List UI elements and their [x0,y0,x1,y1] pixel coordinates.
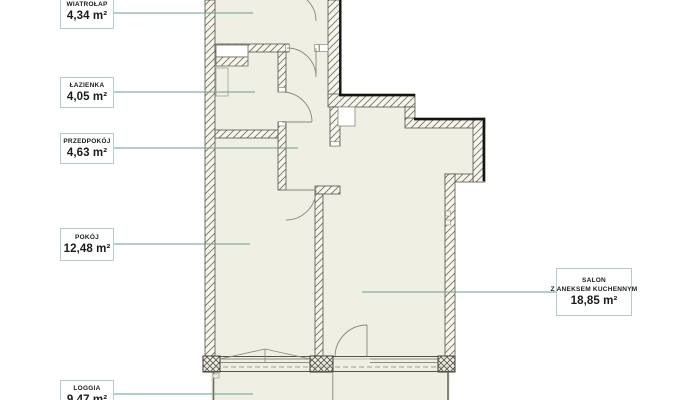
room-name: PRZEDPOKÓJ [63,138,110,145]
room-name: SALON [582,277,606,284]
room-name: LOGGIA [73,385,100,392]
room-label-pokoj: POKÓJ 12,48 m² [60,228,114,261]
room-area: 4,63 m² [67,147,107,159]
room-label-przedpokoj: PRZEDPOKÓJ 4,63 m² [60,133,114,164]
floor-plan-drawing [0,0,692,400]
room-area: 12,48 m² [64,243,111,255]
room-area: 18,85 m² [571,295,618,307]
room-name: WIATROŁAP [66,1,107,8]
room-area: 4,34 m² [67,10,107,22]
room-area: 9,47 m² [67,394,107,400]
room-name-line2: Z ANEKSEM KUCHENNYM [551,286,638,293]
room-area: 4,05 m² [67,91,107,103]
room-label-lazienka: ŁAZIENKA 4,05 m² [60,77,114,108]
floor-plan-page: WIATROŁAP 4,34 m² ŁAZIENKA 4,05 m² PRZED… [0,0,692,400]
room-label-salon: SALON Z ANEKSEM KUCHENNYM 18,85 m² [556,268,632,316]
room-name: ŁAZIENKA [70,82,105,89]
room-label-loggia: LOGGIA 9,47 m² [60,380,114,400]
room-name: POKÓJ [75,234,99,241]
room-label-wiatrolap: WIATROŁAP 4,34 m² [60,0,114,29]
